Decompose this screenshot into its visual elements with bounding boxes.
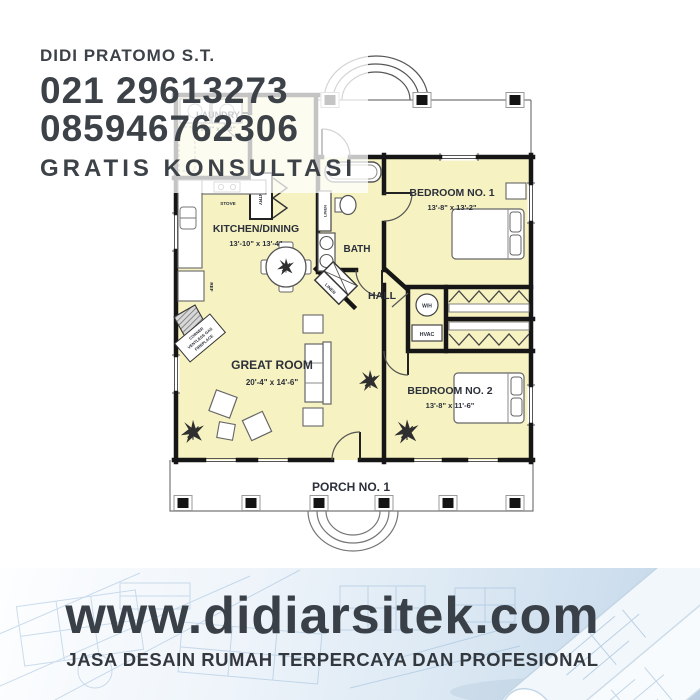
porch-column-icon [174,496,192,511]
contact-block: DIDI PRATOMO S.T. 021 29613273 085946762… [32,38,368,193]
porch-column-icon [506,93,524,108]
banner-tagline: JASA DESAIN RUMAH TERPERCAYA DAN PROFESI… [0,649,665,671]
website-url: www.didiarsitek.com [0,590,665,642]
bath-label: BATH [343,244,370,255]
footer-banner: www.didiarsitek.com JASA DESAIN RUMAH TE… [0,568,700,700]
bedroom1-label: BEDROOM NO. 1 [409,187,494,199]
free-consultation-text: GRATIS KONSULTASI [40,155,356,183]
hvac-label: HVAC [420,332,435,338]
hall-label: HALL [368,290,397,302]
porch-column-icon [439,496,457,511]
fridge-label: REF [209,282,214,291]
porch-column-icon [242,496,260,511]
kitchen-label: KITCHEN/DINING [213,223,299,235]
porch-column-icon [506,496,524,511]
bedroom2-dim: 13'-8" x 11'-6" [426,401,475,410]
kitchen-dim: 13'-10" x 13'-4" [229,239,283,248]
great-room-label: GREAT ROOM [231,358,313,372]
porch-label: PORCH NO. 1 [312,480,390,494]
linen-bath-label: LINEN [323,205,328,217]
phone-number-1: 021 29613273 [40,72,356,110]
porch-column-icon [413,93,431,108]
bedroom2-label: BEDROOM NO. 2 [407,385,492,397]
stove-label: STOVE [220,201,236,206]
phone-number-2: 085946762306 [40,110,356,148]
water-heater-label: W/H [422,303,432,309]
porch-column-icon [375,496,393,511]
great-room-dim: 20'-4" x 14'-6" [246,378,299,387]
bedroom1-dim: 13'-8" x 13'-2" [427,203,476,212]
promo-ad-image: PANTRY STOVE REF [0,0,700,700]
architect-name: DIDI PRATOMO S.T. [40,46,356,66]
banner-text: www.didiarsitek.com JASA DESAIN RUMAH TE… [0,568,665,700]
porch-column-icon [310,496,328,511]
